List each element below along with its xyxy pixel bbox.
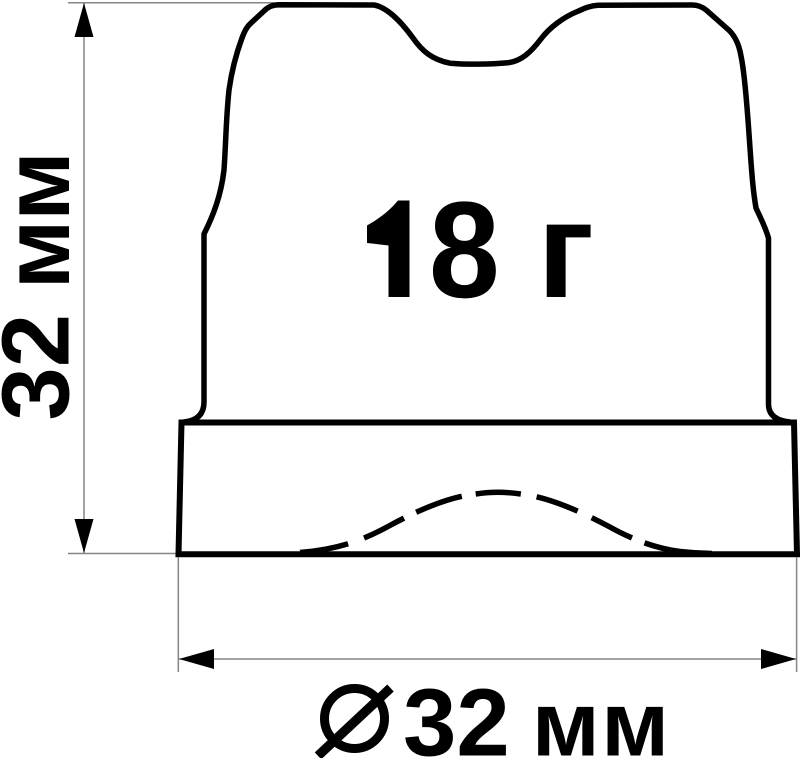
svg-text:м: м bbox=[0, 220, 89, 290]
svg-text:г: г bbox=[537, 174, 594, 327]
svg-text:м: м bbox=[0, 151, 89, 221]
svg-text:8: 8 bbox=[429, 174, 500, 327]
svg-text:32: 32 bbox=[403, 669, 510, 758]
svg-text:м: м bbox=[532, 674, 600, 758]
svg-text:м: м bbox=[601, 674, 669, 758]
svg-text:32: 32 bbox=[0, 314, 90, 421]
